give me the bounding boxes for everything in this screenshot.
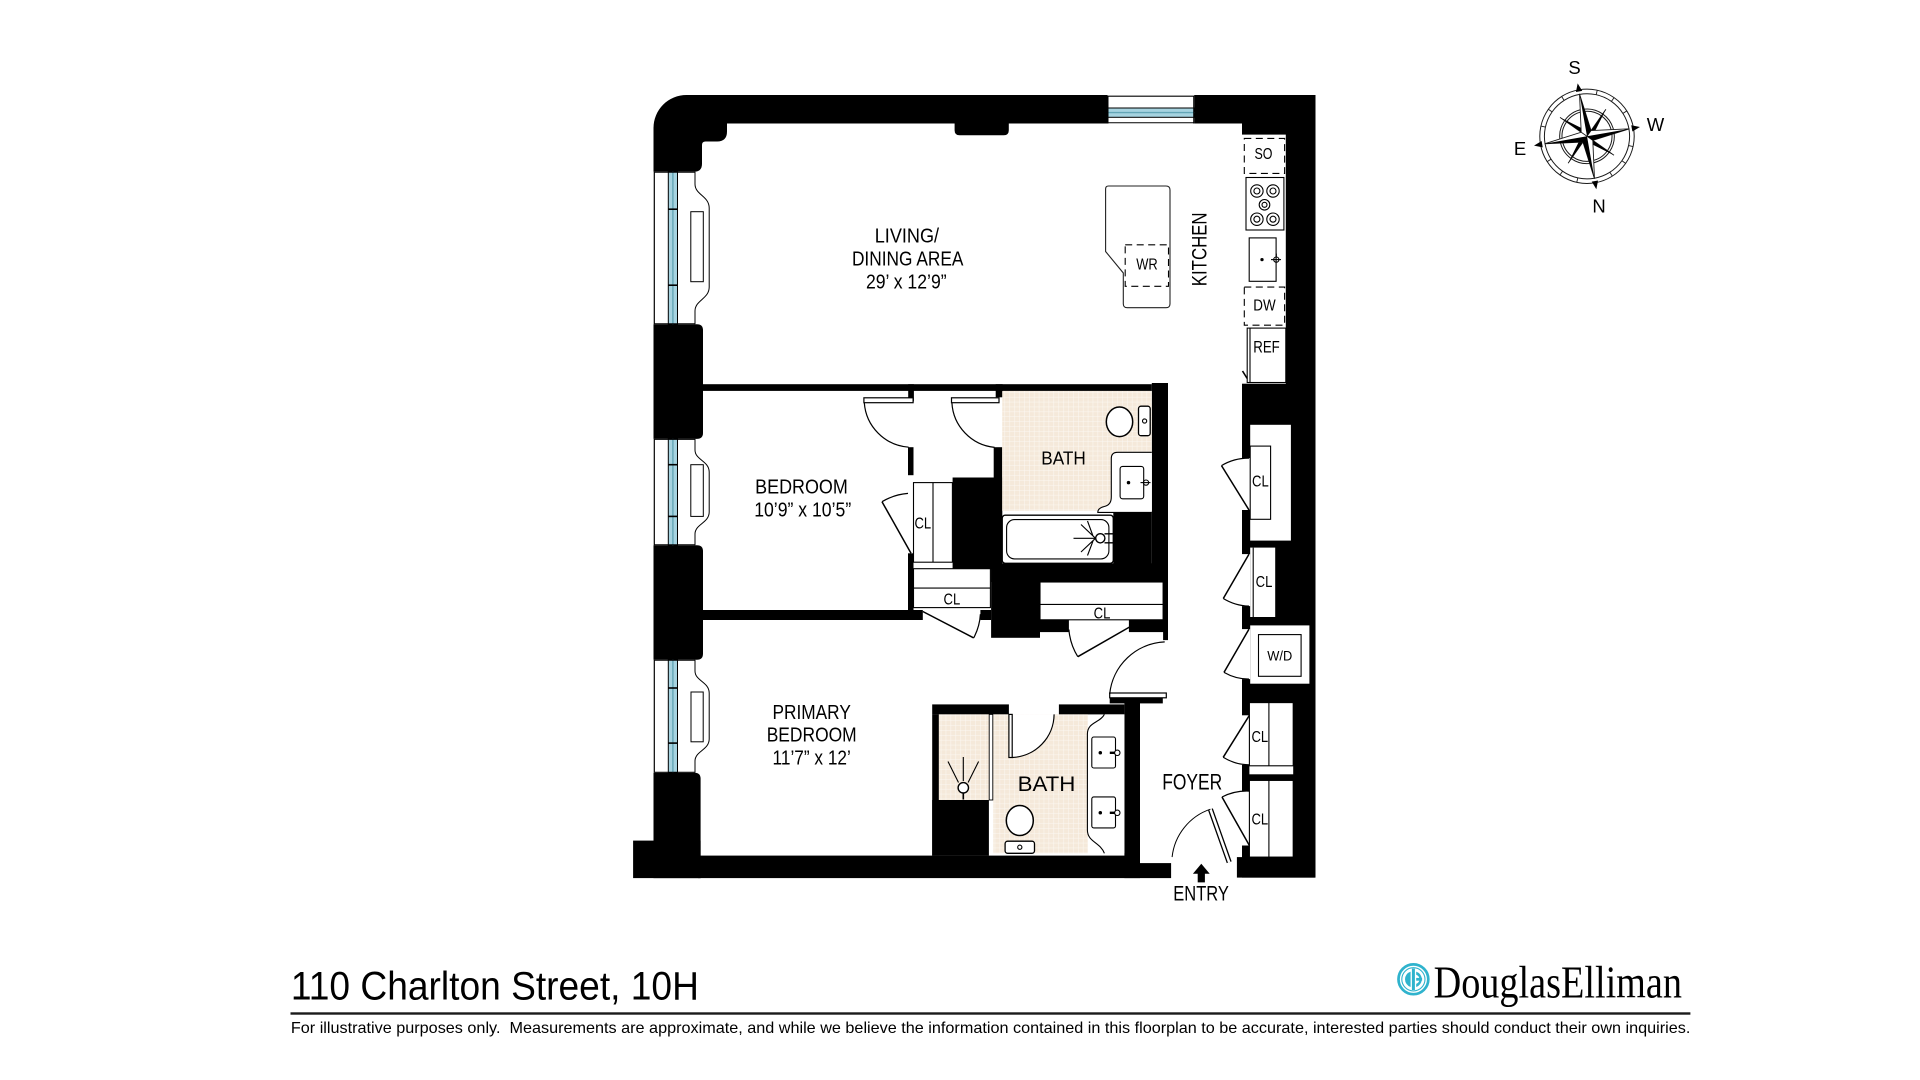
svg-text:S: S (1568, 57, 1580, 78)
svg-text:For illustrative purposes only: For illustrative purposes only. Measurem… (291, 1020, 1691, 1037)
svg-text:CL: CL (1251, 729, 1268, 746)
svg-text:CL: CL (1251, 812, 1268, 829)
svg-text:W/D: W/D (1267, 647, 1292, 663)
svg-text:DouglasElliman: DouglasElliman (1434, 958, 1682, 1008)
svg-text:BATH: BATH (1041, 447, 1086, 468)
svg-text:PRIMARY: PRIMARY (773, 701, 852, 724)
svg-text:W: W (1647, 114, 1665, 135)
svg-text:LIVING/: LIVING/ (875, 224, 940, 247)
svg-text:CL: CL (944, 592, 961, 609)
svg-text:N: N (1592, 196, 1605, 217)
svg-text:SO: SO (1255, 146, 1273, 163)
svg-text:11’7” x 12’: 11’7” x 12’ (773, 747, 851, 770)
svg-text:110 Charlton Street, 10H: 110 Charlton Street, 10H (291, 964, 699, 1008)
svg-text:CL: CL (1256, 574, 1273, 591)
svg-text:E: E (1514, 138, 1526, 159)
svg-text:BEDROOM: BEDROOM (767, 724, 857, 747)
svg-text:DINING AREA: DINING AREA (852, 247, 964, 270)
svg-text:KITCHEN: KITCHEN (1189, 212, 1212, 286)
svg-text:ENTRY: ENTRY (1173, 883, 1229, 906)
svg-text:REF: REF (1253, 339, 1280, 357)
svg-text:29’ x 12’9”: 29’ x 12’9” (866, 270, 947, 293)
svg-text:CL: CL (1252, 474, 1269, 491)
svg-text:BATH: BATH (1018, 773, 1076, 796)
svg-text:BEDROOM: BEDROOM (755, 475, 848, 498)
svg-text:CL: CL (1094, 605, 1111, 622)
svg-text:FOYER: FOYER (1162, 770, 1222, 795)
svg-text:WR: WR (1136, 257, 1158, 274)
svg-text:CL: CL (914, 515, 931, 532)
svg-text:DW: DW (1253, 297, 1276, 314)
svg-text:10’9” x 10’5”: 10’9” x 10’5” (754, 498, 851, 521)
